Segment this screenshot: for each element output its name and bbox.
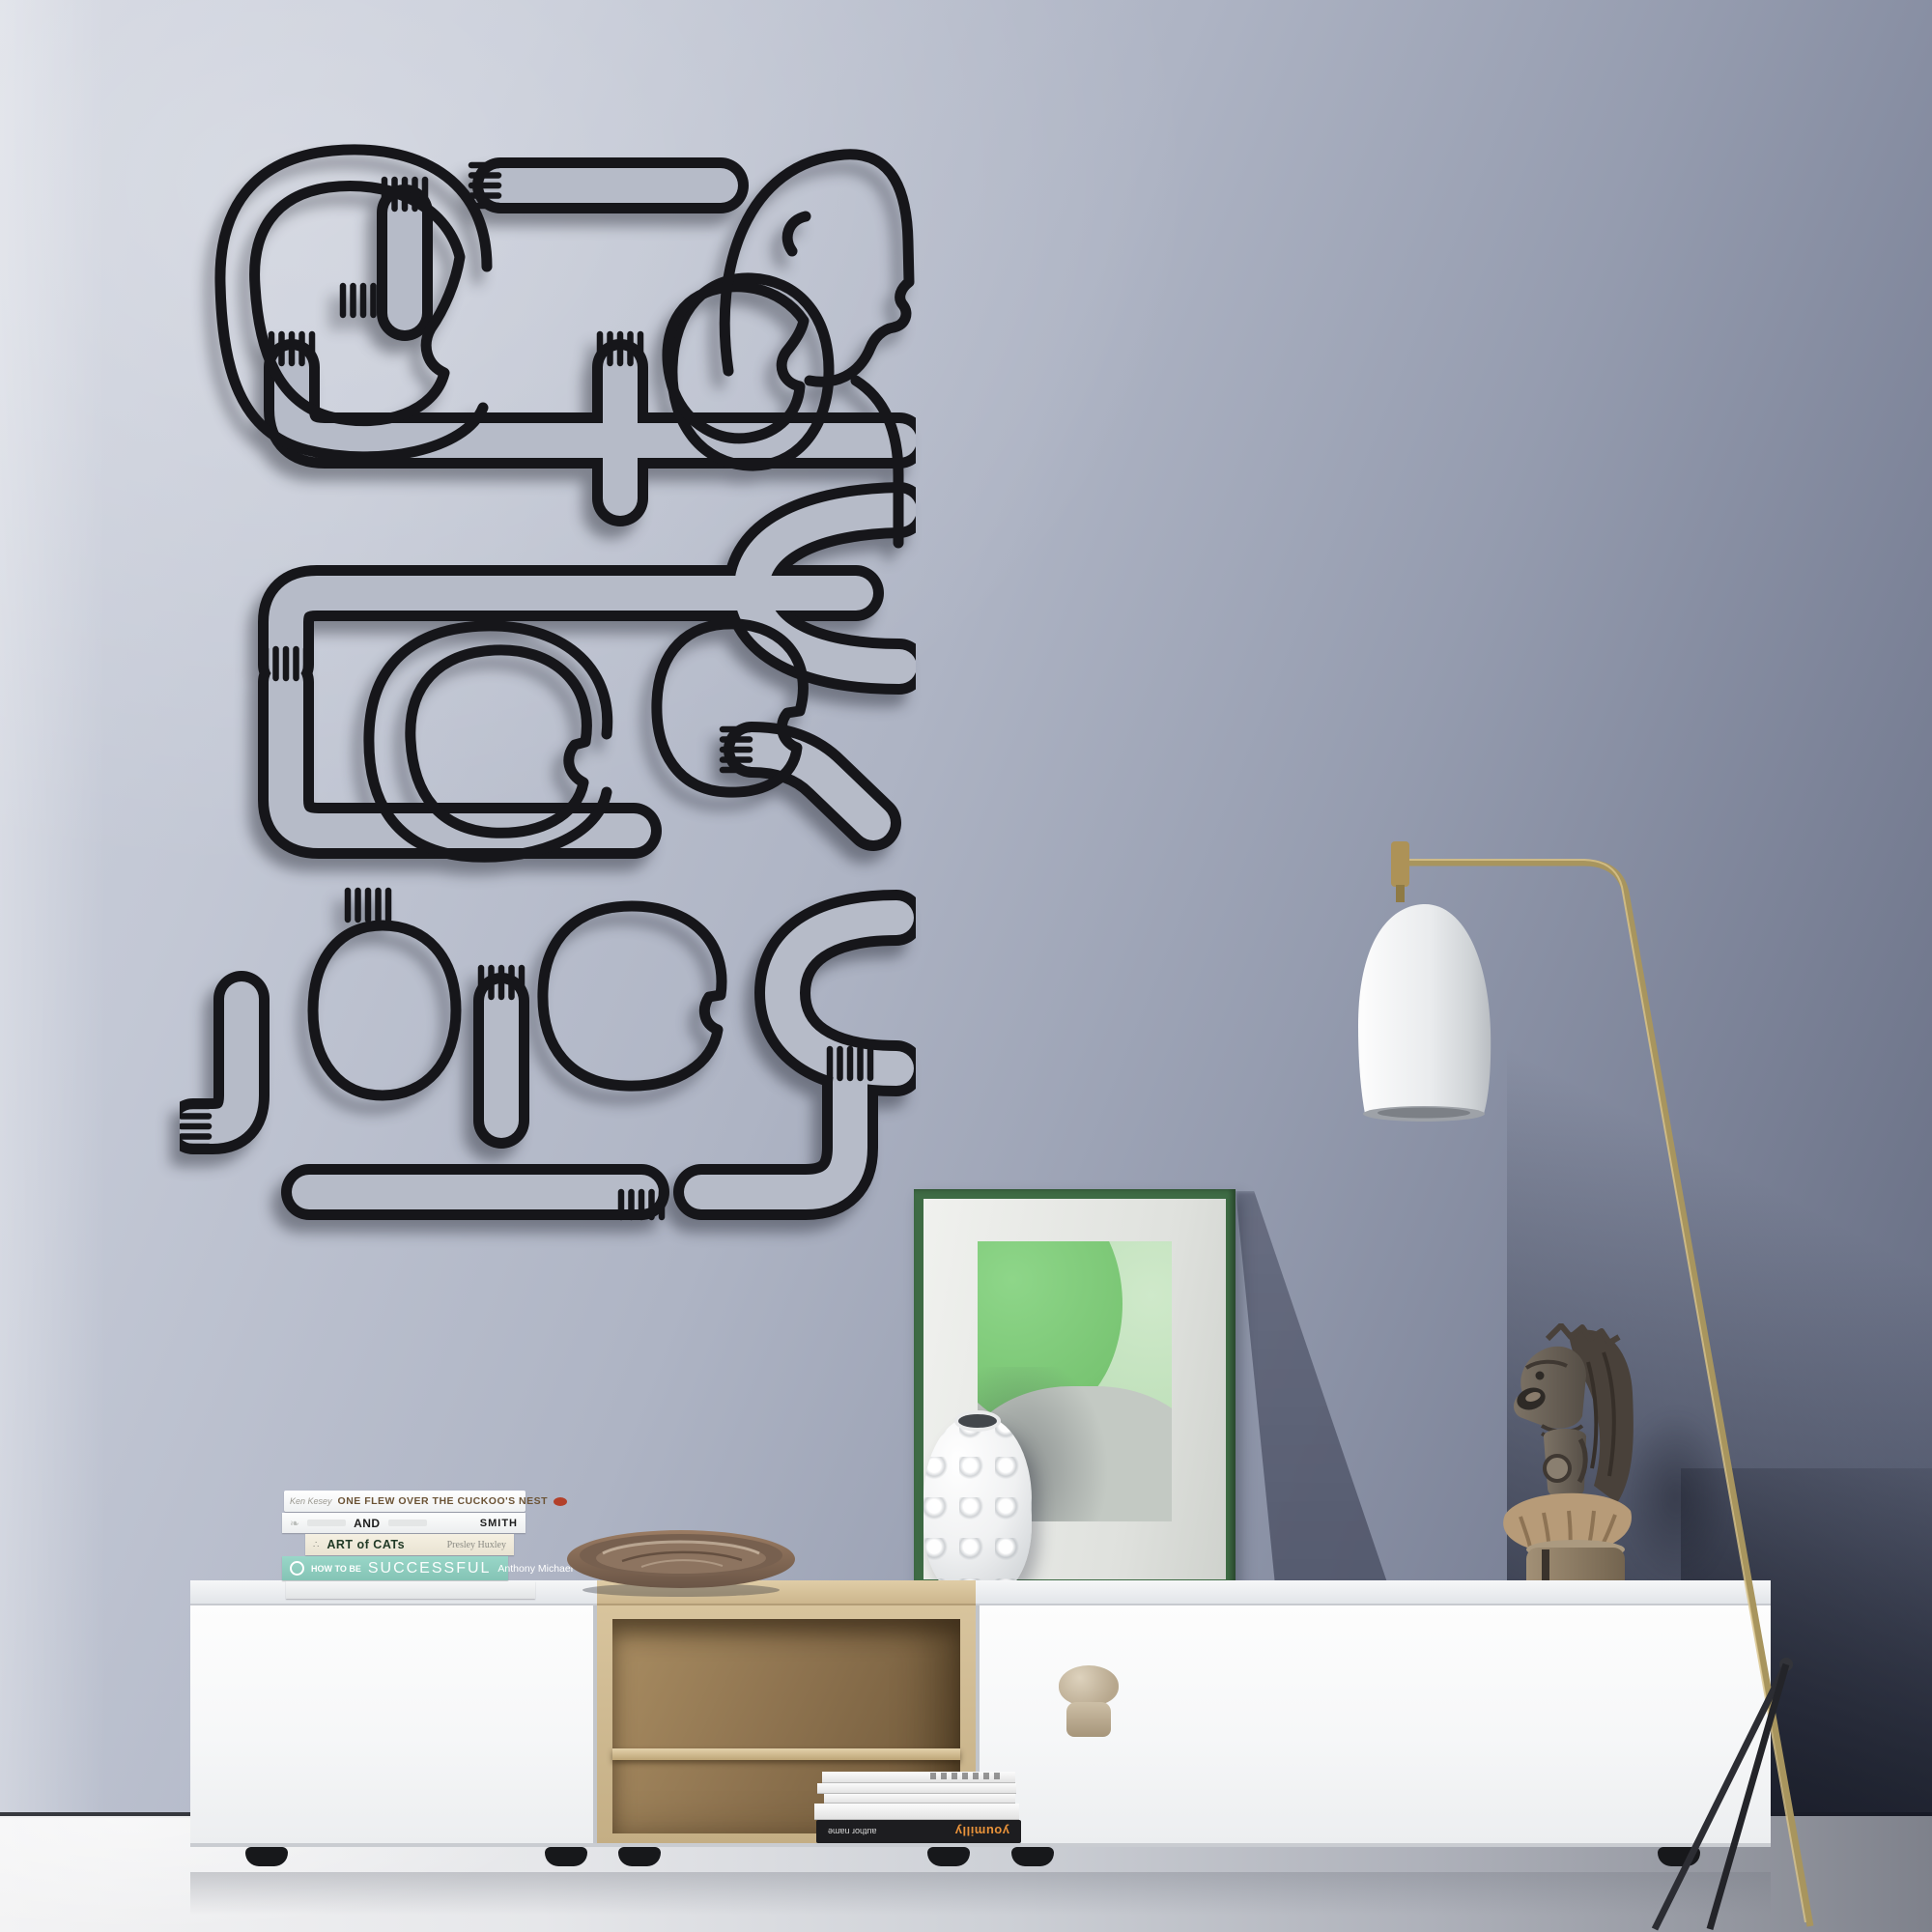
tribal-statue (1488, 1323, 1650, 1605)
book-spine-art-of-cats: ∴ ART of CATs Presley Huxley (305, 1534, 514, 1555)
publisher-logo-icon (554, 1497, 567, 1506)
sideboard-foot (1658, 1847, 1700, 1866)
book-title: SUCCESSFUL (368, 1560, 492, 1577)
book-spine-plain (286, 1581, 535, 1599)
wall-art-line-figures (180, 122, 916, 1223)
bird-doodle-icon: ❧ (290, 1517, 299, 1530)
shelf-divider (612, 1748, 960, 1760)
book-spine-cuckoos-nest: Ken Kesey ONE FLEW OVER THE CUCKOO'S NES… (284, 1491, 526, 1512)
book-stack: Ken Kesey ONE FLEW OVER THE CUCKOO'S NES… (282, 1491, 539, 1599)
sideboard-foot (1011, 1847, 1054, 1866)
wall-left-corner-light (0, 0, 106, 1818)
statue-head (1514, 1347, 1586, 1429)
magazine (817, 1783, 1016, 1794)
room-scene: youmilly author name Ken Kesey ONE FLEW … (0, 0, 1932, 1932)
sideboard-foot (618, 1847, 661, 1866)
black-book-title: youmilly (954, 1825, 1009, 1839)
black-book-spine: youmilly author name (816, 1820, 1021, 1843)
magazine (814, 1804, 1019, 1820)
magazine (824, 1794, 1015, 1804)
magazine-stack: youmilly author name (814, 1772, 1025, 1845)
embossed-word (307, 1520, 346, 1526)
book-author: Presley Huxley (447, 1540, 506, 1550)
book-author: SMITH (480, 1518, 518, 1529)
sideboard: youmilly author name (190, 1580, 1771, 1870)
black-book-author: author name (828, 1827, 877, 1836)
mushroom-cap (1059, 1665, 1119, 1706)
book-spine-smith: ❧ AND SMITH (282, 1513, 526, 1533)
statue-eye (1536, 1372, 1545, 1380)
book-tagline: HOW TO BE (311, 1564, 361, 1574)
brain-logo-icon (290, 1561, 304, 1576)
stone-mushroom-object (1059, 1665, 1119, 1737)
book-author: Ken Kesey (290, 1496, 332, 1506)
sideboard-open-shelf: youmilly author name (597, 1605, 976, 1845)
magazine (822, 1772, 1015, 1783)
embossed-word (388, 1520, 427, 1526)
book-word: AND (354, 1517, 381, 1530)
sideboard-bottom-edge (190, 1843, 1771, 1847)
floor-reflection (190, 1872, 1771, 1915)
book-title: ONE FLEW OVER THE CUCKOO'S NEST (338, 1495, 549, 1507)
sideboard-foot (927, 1847, 970, 1866)
book-spine-successful: HOW TO BE SUCCESSFUL Anthony Michael (282, 1556, 508, 1580)
mushroom-stem (1066, 1702, 1111, 1737)
magazine-cover-text (930, 1773, 1000, 1779)
bubble-vase (923, 1416, 1032, 1598)
book-author: Anthony Michael (497, 1563, 573, 1575)
wooden-bowl (564, 1528, 798, 1598)
vase-mouth (958, 1414, 997, 1428)
sideboard-foot (545, 1847, 587, 1866)
sideboard-foot (245, 1847, 288, 1866)
statue-belly (1545, 1456, 1570, 1481)
paw-doodle-icon: ∴ (313, 1540, 319, 1550)
book-title: ART of CATs (327, 1538, 405, 1551)
